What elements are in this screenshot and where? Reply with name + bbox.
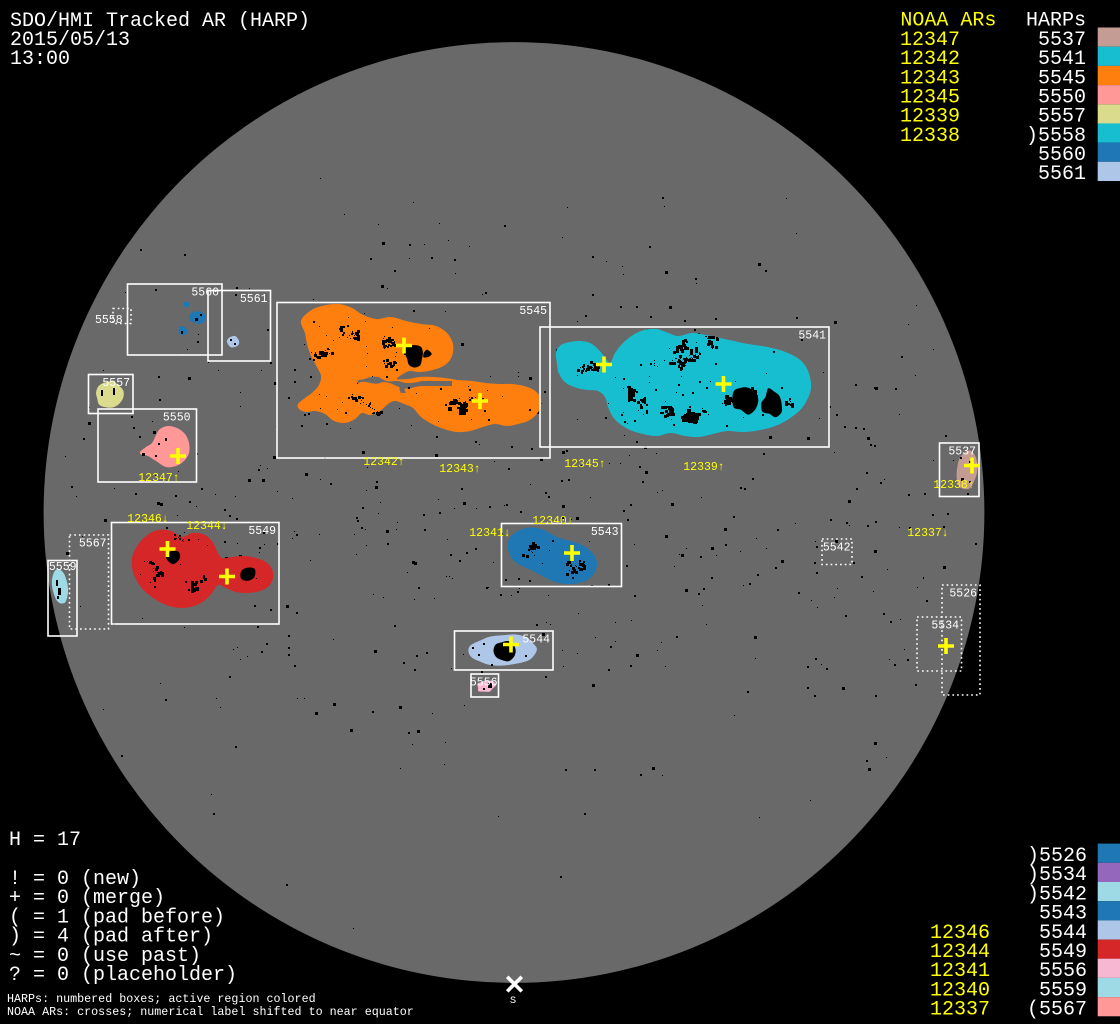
svg-text:5537: 5537 (948, 446, 976, 459)
svg-text:5534: 5534 (931, 620, 959, 633)
svg-text:12346↓: 12346↓ (127, 513, 168, 526)
svg-text:5542: 5542 (823, 542, 851, 555)
svg-text:5556: 5556 (470, 677, 498, 690)
svg-text:5541: 5541 (798, 330, 826, 343)
svg-text:12337: 12337 (930, 999, 990, 1022)
svg-text:5557: 5557 (102, 377, 130, 390)
svg-text:12339↑: 12339↑ (683, 461, 724, 474)
svg-text:5559: 5559 (49, 561, 77, 574)
svg-text:5560: 5560 (191, 287, 219, 300)
svg-text:NOAA ARs: crosses; numerical l: NOAA ARs: crosses; numerical label shift… (7, 1005, 414, 1019)
svg-text:5543: 5543 (591, 526, 619, 539)
svg-text:HARPs: numbered boxes; active: HARPs: numbered boxes; active region col… (7, 992, 316, 1006)
svg-text:5561: 5561 (240, 293, 268, 306)
svg-text:12347↑: 12347↑ (138, 472, 179, 485)
svg-text:5558: 5558 (95, 314, 123, 327)
svg-text:H = 17: H = 17 (9, 829, 81, 852)
svg-text:5550: 5550 (163, 412, 191, 425)
svg-text:12344↓: 12344↓ (186, 520, 227, 533)
svg-text:5561: 5561 (1038, 163, 1086, 186)
svg-text:12338↑: 12338↑ (933, 479, 974, 492)
svg-text:12337↓: 12337↓ (907, 527, 948, 540)
svg-text:12343↑: 12343↑ (439, 463, 480, 476)
svg-text:12340↓: 12340↓ (532, 515, 573, 528)
svg-text:12341↓: 12341↓ (469, 527, 510, 540)
svg-text:(5567: (5567 (1027, 999, 1087, 1022)
svg-text:13:00: 13:00 (10, 48, 70, 71)
svg-text:12345↑: 12345↑ (564, 458, 605, 471)
svg-text:5545: 5545 (519, 305, 547, 318)
svg-text:12338: 12338 (900, 125, 960, 148)
svg-text:5549: 5549 (248, 525, 276, 538)
svg-text:5567: 5567 (79, 538, 107, 551)
svg-text:12342↑: 12342↑ (363, 456, 404, 469)
svg-text:5544: 5544 (522, 634, 550, 647)
svg-text:? = 0 (placeholder): ? = 0 (placeholder) (9, 964, 237, 987)
svg-text:5526: 5526 (949, 588, 977, 601)
svg-text:S: S (510, 995, 516, 1007)
